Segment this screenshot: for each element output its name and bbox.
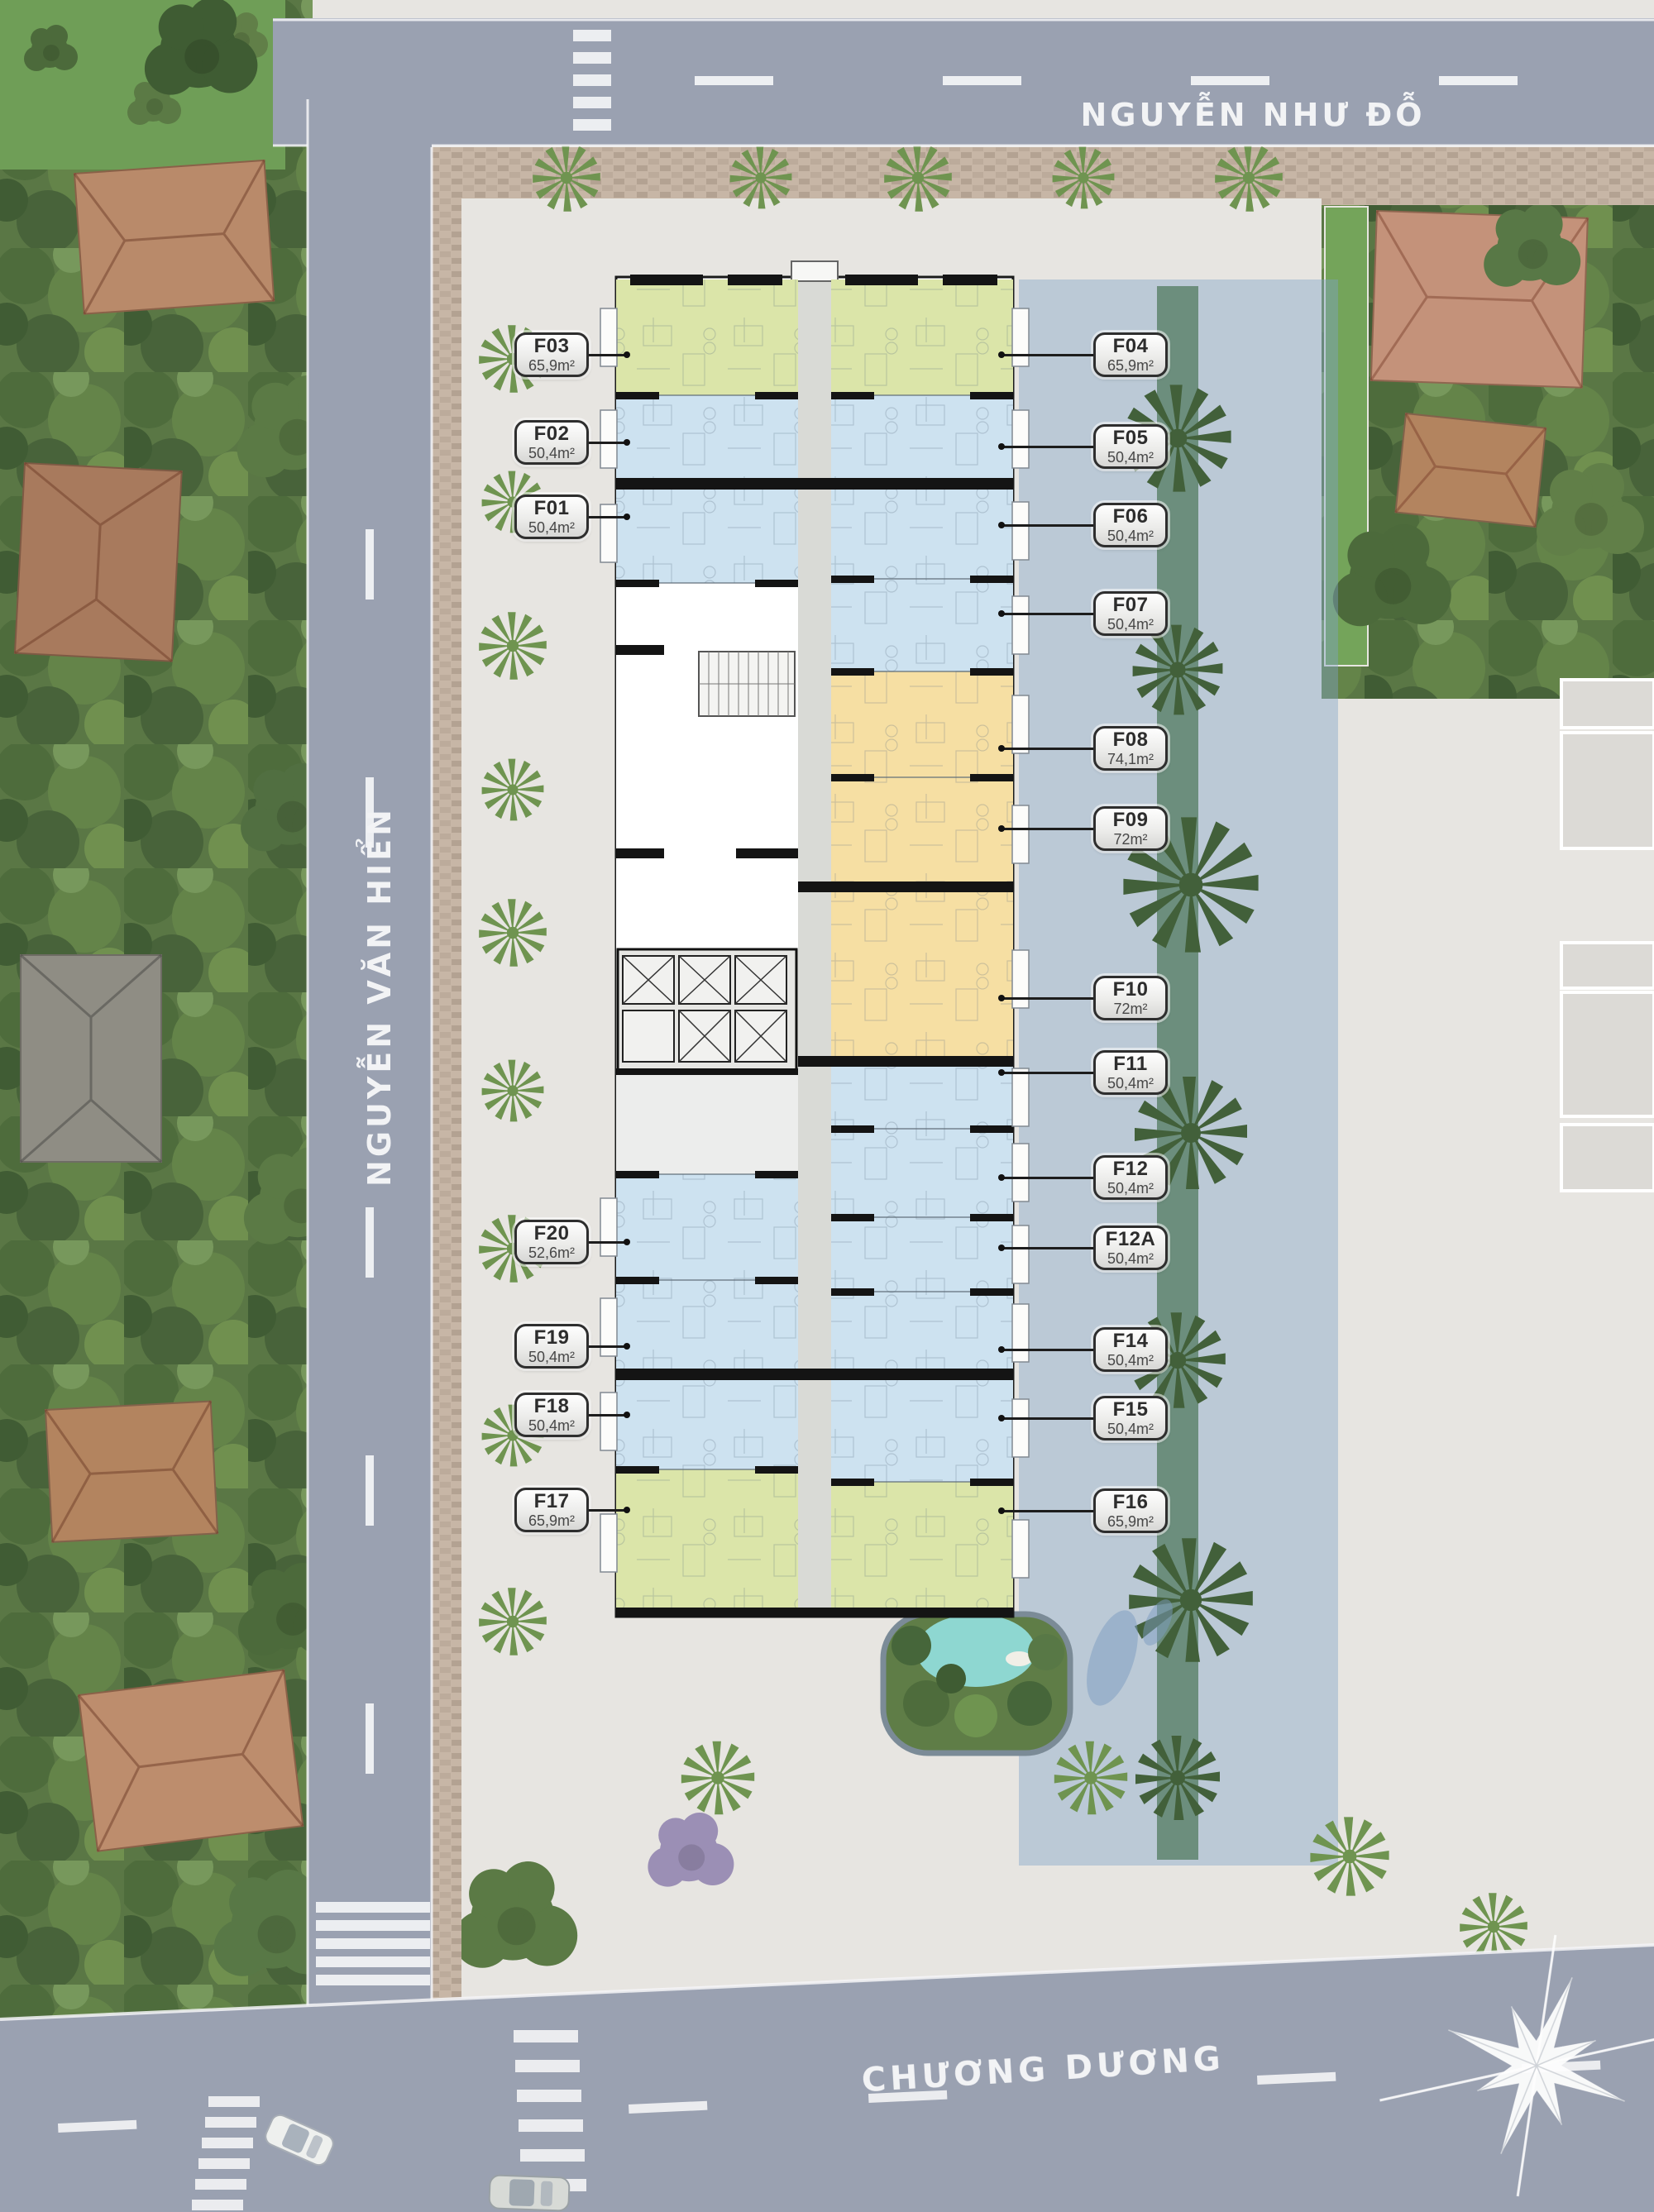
unit-id: F09: [1113, 810, 1149, 830]
unit-label-f06[interactable]: F0650,4m²: [1093, 503, 1168, 547]
unit-label-f05[interactable]: F0550,4m²: [1093, 424, 1168, 469]
unit-area: 52,6m²: [528, 1245, 575, 1261]
unit-label-f09[interactable]: F0972m²: [1093, 806, 1168, 851]
unit-id: F10: [1113, 979, 1149, 1000]
unit-area: 72m²: [1113, 1001, 1147, 1017]
unit-label-f17[interactable]: F1765,9m²: [514, 1488, 589, 1532]
unit-area: 50,4m²: [528, 1350, 575, 1365]
unit-label-f18[interactable]: F1850,4m²: [514, 1393, 589, 1437]
entrance-canopy: [791, 261, 838, 281]
unit-label-f02[interactable]: F0250,4m²: [514, 420, 589, 465]
unit-id: F02: [534, 423, 570, 444]
unit-id: F18: [534, 1396, 570, 1417]
unit-id: F20: [534, 1223, 570, 1244]
unit-id: F04: [1113, 336, 1149, 356]
unit-label-f14[interactable]: F1450,4m²: [1093, 1327, 1168, 1372]
unit-label-f12a[interactable]: F12A50,4m²: [1093, 1225, 1168, 1270]
unit-id: F16: [1113, 1492, 1149, 1512]
street-name-left: NGUYỄN VĂN HIỂN: [356, 806, 398, 1187]
site-plan-svg: NGUYỄN NHƯ ĐỖ NGUYỄN VĂN HIỂN: [0, 0, 1654, 2212]
unit-label-f08[interactable]: F0874,1m²: [1093, 726, 1168, 771]
unit-label-f01[interactable]: F0150,4m²: [514, 494, 589, 539]
unit-id: F14: [1113, 1331, 1149, 1351]
top-right-tree-zone: [1322, 170, 1654, 699]
unit-area: 50,4m²: [1107, 1251, 1154, 1267]
unit-id: F01: [534, 498, 570, 518]
unit-area: 50,4m²: [1107, 1421, 1154, 1437]
road-left: NGUYỄN VĂN HIỂN: [308, 98, 432, 2212]
unit-area: 50,4m²: [1107, 1181, 1154, 1197]
unit-id: F03: [534, 336, 570, 356]
unit-area: 65,9m²: [528, 1513, 575, 1529]
unit-id: F07: [1113, 595, 1149, 615]
unit-area: 50,4m²: [1107, 450, 1154, 466]
car-silver-sedan: [489, 2175, 569, 2210]
unit-label-f07[interactable]: F0750,4m²: [1093, 591, 1168, 636]
road-top: NGUYỄN NHƯ ĐỖ: [273, 18, 1654, 146]
unit-id: F06: [1113, 506, 1149, 527]
unit-area: 74,1m²: [1107, 752, 1154, 767]
building-floor-plan: [600, 261, 1029, 1617]
unit-area: 72m²: [1113, 832, 1147, 848]
unit-id: F17: [534, 1491, 570, 1512]
unit-area: 50,4m²: [1107, 528, 1154, 544]
unit-area: 65,9m²: [528, 358, 575, 374]
unit-area: 50,4m²: [528, 446, 575, 461]
swimming-pool: [916, 1614, 1035, 1687]
unit-id: F15: [1113, 1399, 1149, 1420]
unit-label-f11[interactable]: F1150,4m²: [1093, 1050, 1168, 1095]
street-name-top: NGUYỄN NHƯ ĐỖ: [1080, 93, 1425, 133]
unit-area: 50,4m²: [1107, 1076, 1154, 1092]
unit-id: F19: [534, 1327, 570, 1348]
staircase: [699, 652, 795, 716]
unit-area: 50,4m²: [528, 520, 575, 536]
unit-label-f19[interactable]: F1950,4m²: [514, 1324, 589, 1369]
unit-id: F05: [1113, 428, 1149, 448]
elevator-core: [616, 949, 798, 1075]
site-plan-page: NGUYỄN NHƯ ĐỖ NGUYỄN VĂN HIỂN: [0, 0, 1654, 2212]
unit-label-f20[interactable]: F2052,6m²: [514, 1220, 589, 1264]
unit-area: 50,4m²: [1107, 617, 1154, 633]
unit-label-f03[interactable]: F0365,9m²: [514, 332, 589, 377]
unit-area: 65,9m²: [1107, 1514, 1154, 1530]
unit-label-f04[interactable]: F0465,9m²: [1093, 332, 1168, 377]
unit-id: F12: [1113, 1159, 1149, 1179]
unit-label-f15[interactable]: F1550,4m²: [1093, 1396, 1168, 1440]
unit-id: F08: [1113, 729, 1149, 750]
unit-id: F12A: [1106, 1229, 1156, 1249]
unit-area: 50,4m²: [1107, 1353, 1154, 1369]
unit-label-f12[interactable]: F1250,4m²: [1093, 1155, 1168, 1200]
unit-id: F11: [1113, 1053, 1148, 1074]
unit-area: 65,9m²: [1107, 358, 1154, 374]
unit-label-f10[interactable]: F1072m²: [1093, 976, 1168, 1020]
unit-area: 50,4m²: [528, 1418, 575, 1434]
unit-label-f16[interactable]: F1665,9m²: [1093, 1488, 1168, 1533]
